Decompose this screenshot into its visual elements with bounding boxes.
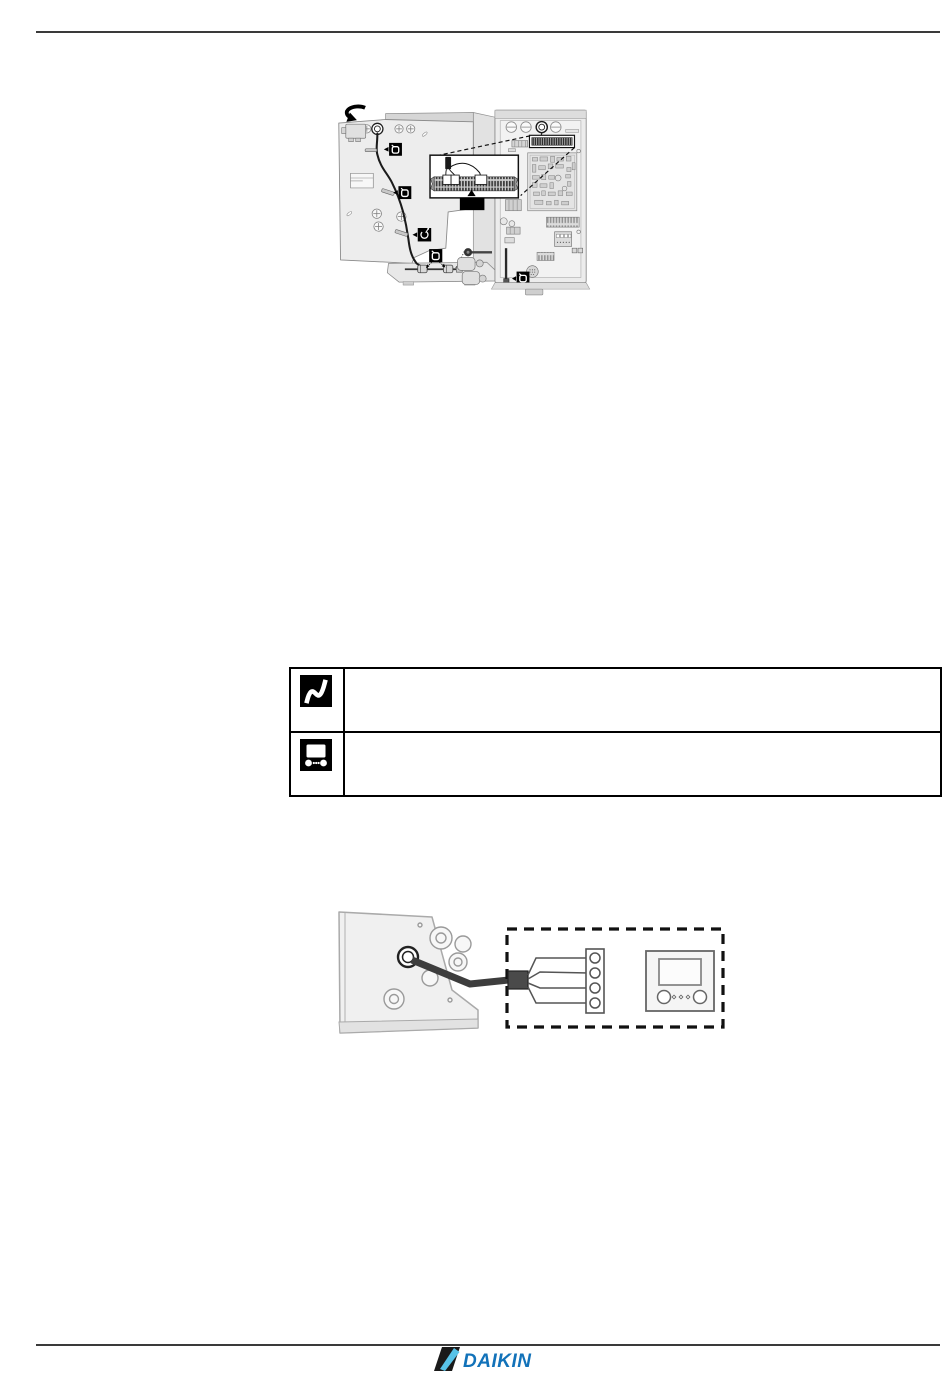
- cable-end: [445, 157, 451, 169]
- screw: [577, 149, 581, 153]
- flexible-cable-icon: [300, 675, 332, 707]
- table-text: [345, 733, 940, 795]
- manual-page: DAIKIN: [0, 0, 950, 1387]
- screw: [577, 230, 581, 234]
- user-interface-icon: [300, 739, 332, 771]
- icon-cell: [291, 669, 345, 731]
- daikin-logo: DAIKIN: [434, 1346, 544, 1372]
- room-thermostat-icon: [646, 951, 714, 1011]
- wiring-routing-figure: [330, 45, 795, 380]
- main-pcb: [528, 153, 577, 211]
- icon-cell: [291, 733, 345, 795]
- unit-corner: [339, 912, 478, 1033]
- rotate-clockwise-arrow-icon: [346, 106, 365, 121]
- fanned-wires: [528, 958, 589, 1003]
- info-table: [289, 667, 942, 797]
- wire-terminal: [451, 175, 459, 184]
- cable-clip: [365, 149, 377, 152]
- wire-terminal: [475, 175, 487, 184]
- thermostat-connection-figure: [330, 900, 730, 1040]
- 4-terminal-strip-icon: [586, 949, 604, 1013]
- box-flange: [491, 283, 589, 289]
- header-rule: [36, 31, 940, 33]
- cable-end: [508, 971, 528, 989]
- wire-terminal: [443, 175, 451, 184]
- unit-foot: [403, 282, 414, 286]
- table-text: [345, 669, 940, 731]
- box-tab: [525, 289, 543, 295]
- table-row: [291, 669, 940, 731]
- vent-slot: [566, 129, 579, 132]
- rating-label-plate: [350, 173, 373, 188]
- table-row: [291, 731, 940, 795]
- switch-box-view: [491, 110, 589, 295]
- daikin-logo-text: DAIKIN: [463, 1351, 532, 1372]
- detail-callout-label: [460, 198, 485, 210]
